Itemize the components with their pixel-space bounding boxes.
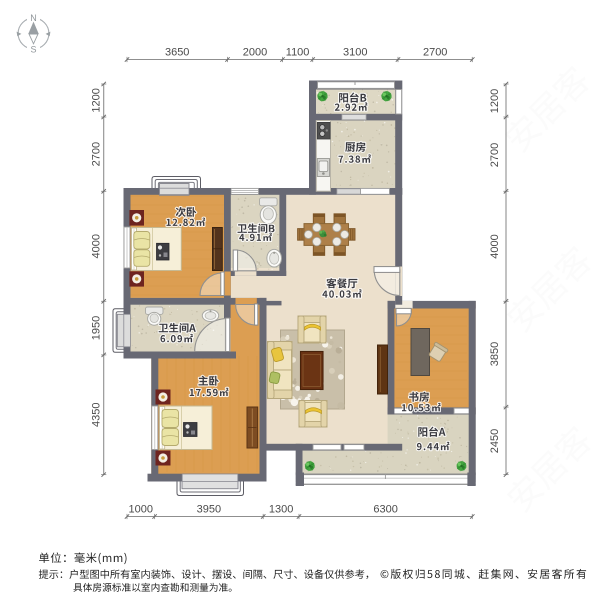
svg-text:1200: 1200 bbox=[91, 88, 103, 112]
svg-text:2700: 2700 bbox=[91, 142, 103, 166]
svg-text:4000: 4000 bbox=[91, 234, 103, 258]
svg-text:2700: 2700 bbox=[423, 47, 447, 59]
svg-text:1950: 1950 bbox=[91, 316, 103, 340]
svg-text:S: S bbox=[30, 45, 36, 55]
svg-text:1100: 1100 bbox=[286, 47, 310, 59]
svg-text:3850: 3850 bbox=[489, 342, 501, 366]
svg-text:6300: 6300 bbox=[373, 504, 397, 516]
svg-text:2450: 2450 bbox=[489, 429, 501, 453]
svg-text:1000: 1000 bbox=[129, 504, 153, 516]
svg-text:4000: 4000 bbox=[489, 234, 501, 258]
svg-text:N: N bbox=[30, 13, 37, 23]
svg-text:2700: 2700 bbox=[489, 143, 501, 167]
svg-text:3100: 3100 bbox=[343, 47, 367, 59]
svg-text:1200: 1200 bbox=[489, 89, 501, 113]
svg-text:2000: 2000 bbox=[243, 47, 267, 59]
svg-text:3650: 3650 bbox=[165, 47, 189, 59]
svg-text:4350: 4350 bbox=[91, 402, 103, 426]
svg-text:1300: 1300 bbox=[269, 504, 293, 516]
svg-text:3950: 3950 bbox=[197, 504, 221, 516]
